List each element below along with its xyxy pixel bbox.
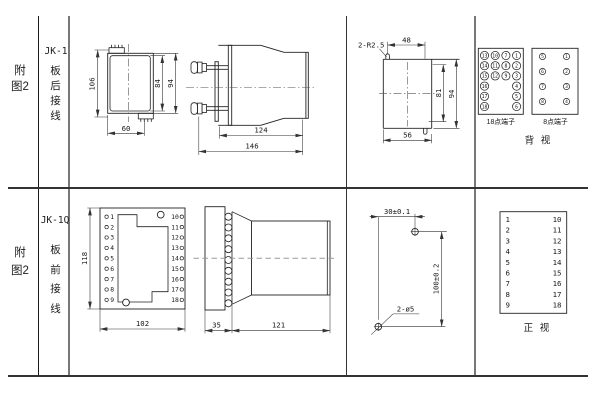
dim-label-121: 121 [272, 320, 285, 329]
terminal-number: 1 [515, 53, 518, 59]
terminal-number: 8 [504, 64, 507, 70]
terminal-number: 7 [110, 275, 114, 283]
dim-label-102: 102 [136, 319, 149, 328]
dim-label-81: 81 [434, 89, 443, 98]
dim-30: 30±0.1 [370, 207, 425, 217]
table-cell: 9 [506, 301, 510, 310]
terminal-number: 17 [482, 94, 488, 100]
border-horizontal-bottom [8, 375, 588, 377]
dim-106: 106 [87, 50, 109, 117]
front-terminals-right: 10 11 12 13 14 15 16 17 18 [171, 213, 183, 304]
line-art: 106 84 94 60 [0, 0, 600, 400]
caption-rear-view: 背 视 [525, 135, 553, 147]
dim-48: 48 [388, 36, 425, 59]
terminal-grid-18pt: 13 14 15 16 17 18 10 11 12 7 8 9 1 2 3 4… [480, 51, 520, 110]
model-label-jk1: JK-1 [42, 46, 70, 57]
label-18pt-terminals: 18点端子 [487, 117, 515, 126]
table-cell: 7 [506, 279, 510, 288]
table-cell: 10 [553, 215, 562, 224]
dim-label-radius: 2-R2.5 [358, 40, 384, 49]
dim-label-146: 146 [245, 142, 258, 151]
terminal-number: 6 [515, 104, 518, 110]
mounting-slot-bottom [423, 128, 427, 134]
terminal-box-8pt [532, 48, 578, 114]
terminal-number: 18 [171, 296, 179, 304]
table-cell: 6 [506, 269, 510, 278]
dim-102: 102 [100, 310, 185, 332]
terminal-number: 12 [171, 234, 179, 242]
terminal-number: 9 [110, 296, 114, 304]
table-cell: 15 [553, 269, 562, 278]
dim-label-94: 94 [166, 79, 175, 88]
jk1-front-view: 106 84 94 60 [87, 44, 178, 136]
table-cell: 12 [553, 236, 562, 245]
table-cell: 2 [506, 226, 510, 235]
terminal-number: 7 [504, 53, 507, 59]
terminal-number: 3 [565, 84, 568, 90]
terminal-number: 3 [110, 234, 114, 242]
caption-front-view: 正 视 [524, 322, 552, 334]
border-vertical-2 [68, 16, 70, 376]
hole-cross-bottom [374, 323, 382, 332]
front-view-table: 1 2 3 4 5 6 7 8 9 10 11 12 13 14 15 16 1… [500, 212, 567, 334]
terminal-number: 18 [482, 104, 488, 110]
terminal-number: 15 [171, 265, 179, 273]
relay-case-outline [108, 53, 154, 113]
drilling-plan: 30±0.1 100±0.2 2-ø5 [370, 207, 447, 335]
wiring-label-rear: 板后接线 [48, 64, 63, 124]
dim-84: 84 [150, 56, 165, 111]
terminal-number: 5 [515, 94, 518, 100]
figure-label-top: 附图2 [11, 63, 29, 95]
table-right-column: 10 11 12 13 14 15 16 17 18 [553, 215, 562, 310]
label-8pt-terminals: 8点端子 [543, 117, 568, 126]
table-cell: 3 [506, 236, 510, 245]
terminal-number: 10 [492, 53, 498, 59]
terminal-number: 11 [492, 64, 498, 70]
dim-56: 56 [383, 130, 431, 144]
rear-view-terminals: 13 14 15 16 17 18 10 11 12 7 8 9 1 2 3 4… [478, 48, 578, 146]
border-vertical-1 [38, 16, 39, 376]
terminal-number: 1 [565, 54, 568, 60]
dim-label-124: 124 [254, 126, 268, 135]
front-terminals-left: 1 2 3 4 5 6 7 8 9 [105, 213, 114, 304]
table-cell: 14 [553, 258, 562, 267]
terminal-number: 11 [171, 223, 179, 231]
terminal-number: 5 [110, 255, 114, 263]
wiring-label-front: 板前接线 [48, 241, 63, 319]
terminal-number: 4 [110, 244, 114, 252]
terminal-number: 6 [541, 69, 544, 75]
terminal-number: 14 [482, 64, 488, 70]
radius-leader [380, 49, 387, 57]
dim-label-100: 100±0.2 [432, 264, 441, 295]
terminal-number: 4 [515, 84, 518, 90]
terminal-number: 14 [171, 255, 179, 263]
terminal-number: 17 [171, 286, 179, 294]
terminal-number: 8 [541, 99, 544, 105]
figure-label-bottom: 附图2 [11, 245, 29, 280]
jk1q-side-view: 35 121 [194, 207, 338, 334]
terminal-number: 5 [541, 54, 544, 60]
relay-cover-outline [110, 56, 150, 111]
terminal-number: 8 [110, 286, 114, 294]
terminal-bumps [225, 213, 232, 307]
dim-label-84: 84 [153, 79, 162, 88]
terminal-number: 3 [515, 74, 518, 80]
table-left-column: 1 2 3 4 5 6 7 8 9 [506, 215, 511, 310]
relay-body [284, 52, 308, 118]
jk1-side-view: 124 146 [186, 45, 316, 155]
terminal-number: 13 [171, 244, 179, 252]
dim-label-106: 106 [87, 77, 96, 90]
border-vertical-3 [346, 16, 347, 376]
dim-label-35: 35 [212, 320, 221, 329]
mounting-screw-bottom [191, 103, 228, 115]
terminal-number: 13 [482, 53, 488, 59]
table-cell: 11 [553, 226, 562, 235]
terminal-number: 12 [492, 74, 498, 80]
mounting-hole-bottom [123, 299, 130, 306]
table-cell: 1 [506, 215, 510, 224]
terminal-number: 2 [515, 64, 518, 70]
table-cell: 18 [553, 301, 562, 310]
terminal-number: 16 [171, 275, 179, 283]
border-vertical-4 [474, 16, 476, 376]
mounting-screw-top [191, 62, 228, 74]
terminal-number: 1 [110, 213, 114, 221]
dim-label-60: 60 [122, 124, 131, 133]
table-cell: 8 [506, 290, 510, 299]
dim-label-94: 94 [447, 89, 456, 98]
jk1q-front-view: 1 2 3 4 5 6 7 8 9 10 11 12 13 14 15 16 1… [80, 208, 185, 332]
dim-label-118: 118 [80, 252, 89, 265]
mounting-hole-top [157, 211, 164, 218]
hole-cross-top [411, 228, 419, 237]
table-cell: 4 [506, 247, 511, 256]
terminal-number: 9 [504, 74, 507, 80]
terminal-number: 7 [541, 84, 544, 90]
terminal-grid-8pt: 5 6 7 8 1 2 3 4 [539, 53, 569, 105]
relay-stepped-outline [118, 215, 168, 302]
relay-body-side [252, 221, 331, 295]
border-horizontal-middle [8, 187, 588, 189]
cutout-centerlines [379, 62, 436, 127]
table-cell: 17 [553, 290, 562, 299]
terminal-number: 4 [565, 99, 568, 105]
dim-35: 35 [205, 305, 232, 333]
terminal-number: 15 [482, 74, 488, 80]
terminal-block-bottom [138, 113, 153, 122]
terminal-number: 2 [565, 69, 568, 75]
dim-100: 100±0.2 [432, 232, 442, 327]
terminal-block-top [109, 45, 124, 54]
dim-label-56: 56 [403, 131, 412, 140]
dim-label-48: 48 [402, 36, 411, 45]
dim-label-holes: 2-ø5 [397, 305, 415, 314]
relay-drawing-sheet: 106 84 94 60 [0, 0, 600, 400]
dim-121: 121 [232, 296, 330, 334]
table-cell: 16 [553, 279, 562, 288]
table-cell: 13 [553, 247, 562, 256]
dim-60: 60 [108, 115, 145, 136]
terminal-number: 2 [110, 223, 114, 231]
dim-label-30: 30±0.1 [384, 207, 410, 216]
table-cell: 5 [506, 258, 510, 267]
mounting-flange [215, 45, 284, 125]
dim-118: 118 [80, 208, 100, 309]
terminal-number: 6 [110, 265, 114, 273]
jk1-panel-cutout: 2-R2.5 48 81 94 56 [358, 36, 460, 144]
model-label-jk1q: JK-1Q [39, 215, 71, 226]
terminal-number: 16 [482, 84, 488, 90]
terminal-number: 10 [171, 213, 179, 221]
